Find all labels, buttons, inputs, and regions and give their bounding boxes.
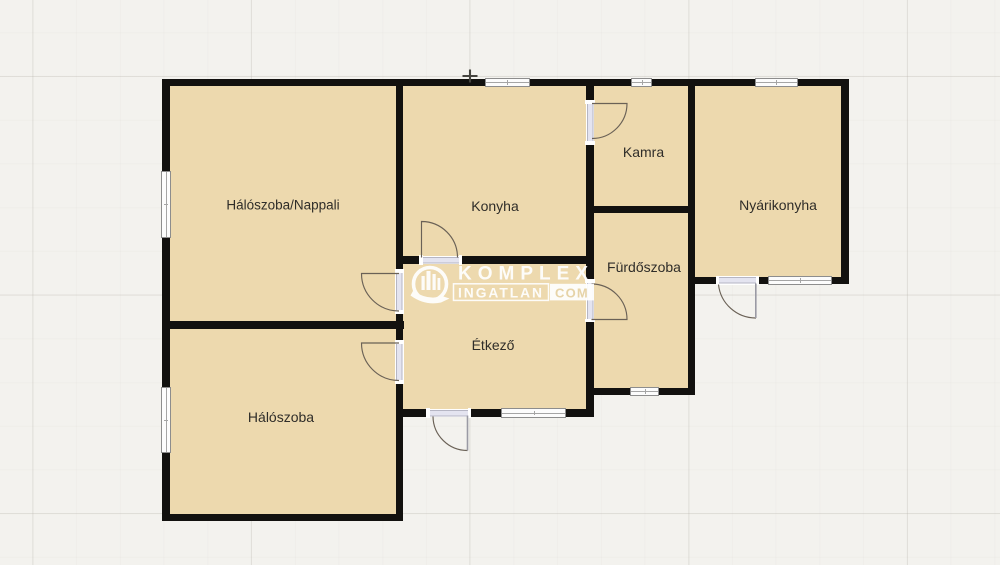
svg-text:KOMPLEX: KOMPLEX [458,264,594,285]
svg-text:INGATLAN: INGATLAN [458,285,544,301]
svg-text:COM: COM [555,286,589,301]
